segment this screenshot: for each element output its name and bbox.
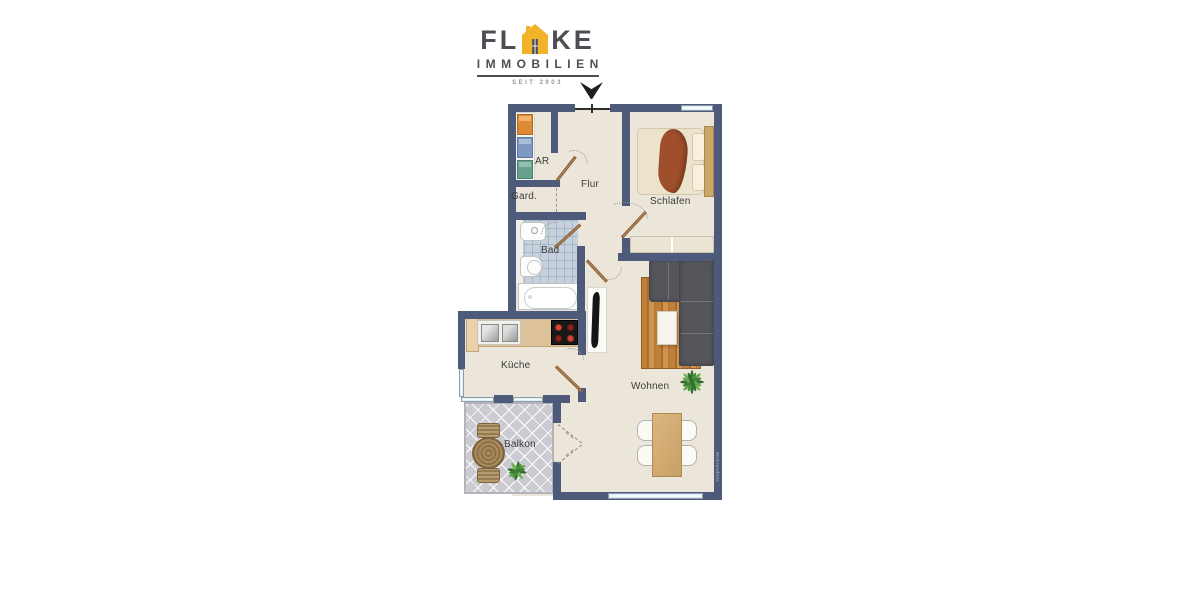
house-icon: [522, 24, 548, 54]
dining-table: [652, 413, 682, 477]
wall: [508, 104, 575, 112]
brand-tagline: SEIT 2003: [450, 80, 625, 86]
kitchen-sink-basin: [481, 324, 499, 342]
wall: [458, 311, 586, 319]
appliance-washer: [517, 137, 533, 158]
appliance-dryer: [517, 114, 533, 135]
plant-icon: [676, 366, 708, 398]
window: [461, 397, 494, 402]
appliance-freezer: [517, 160, 533, 179]
wall: [494, 395, 513, 403]
wall: [508, 180, 560, 187]
wardrobe: [630, 236, 714, 253]
garderobe-opening: [556, 188, 557, 212]
window: [608, 493, 703, 499]
room-label-schlafen: Schlafen: [650, 196, 691, 207]
room-label-bad: Bad: [541, 245, 559, 256]
burner: [567, 324, 574, 331]
brand-name: FL KE: [450, 24, 625, 54]
coffee-table: [657, 311, 677, 345]
room-label-wohnen: Wohnen: [631, 381, 669, 392]
appliance-panel: [519, 139, 531, 144]
bathtub: [518, 283, 580, 310]
appliance-panel: [519, 162, 531, 167]
toilet: [520, 256, 543, 277]
wall: [551, 110, 558, 153]
appliance-panel: [519, 116, 531, 121]
wall: [578, 319, 586, 355]
dining-chair: [680, 420, 697, 441]
sofa-seam: [681, 333, 713, 334]
sofa-seam: [668, 262, 669, 300]
wall: [714, 104, 722, 500]
balcony-chair: [477, 423, 500, 438]
bathtub-drain: [528, 295, 532, 299]
bed-headboard: [704, 126, 714, 197]
room-label-ar: AR: [535, 156, 549, 167]
brand-logo: FL KE IMMOBILIEN SEIT 2003: [450, 24, 625, 86]
balcony-table: [472, 437, 505, 469]
burner: [567, 335, 574, 342]
burner: [555, 335, 562, 342]
toilet-bowl: [527, 260, 542, 275]
window: [513, 397, 543, 402]
sofa: [679, 259, 714, 366]
room-label-balkon: Balkon: [504, 439, 536, 450]
burner: [555, 324, 562, 331]
kitchen-sink-unit: [477, 320, 521, 345]
wall: [622, 110, 630, 206]
dining-chair: [680, 445, 697, 466]
wall: [618, 253, 722, 261]
bathtub-inner: [524, 287, 577, 309]
plant-icon: [504, 458, 530, 484]
room-label-flur: Flur: [581, 179, 599, 190]
window: [681, 105, 713, 111]
wall: [508, 212, 586, 220]
brand-divider: [477, 75, 599, 77]
brand-name-suffix: KE: [551, 27, 595, 54]
brand-name-prefix: FL: [480, 27, 519, 54]
cooktop: [551, 320, 578, 345]
watermark: McGrundriss: [715, 452, 720, 482]
window: [459, 369, 464, 397]
entry-door-tick: [591, 104, 593, 113]
wardrobe-divider: [671, 237, 673, 252]
brand-subtitle: IMMOBILIEN: [450, 57, 625, 71]
balcony-chair: [477, 468, 500, 483]
wall: [458, 319, 465, 369]
wall: [577, 246, 585, 311]
wall: [553, 395, 561, 423]
room-label-garderobe: Gard.: [511, 191, 537, 202]
room-label-kueche: Küche: [501, 360, 530, 371]
kitchen-sink-basin: [502, 324, 518, 342]
sofa-seam: [681, 301, 713, 302]
sink-drain: [531, 227, 538, 234]
wall: [553, 462, 561, 492]
floorplan-page: FL KE IMMOBILIEN SEIT 2003: [0, 0, 1200, 600]
